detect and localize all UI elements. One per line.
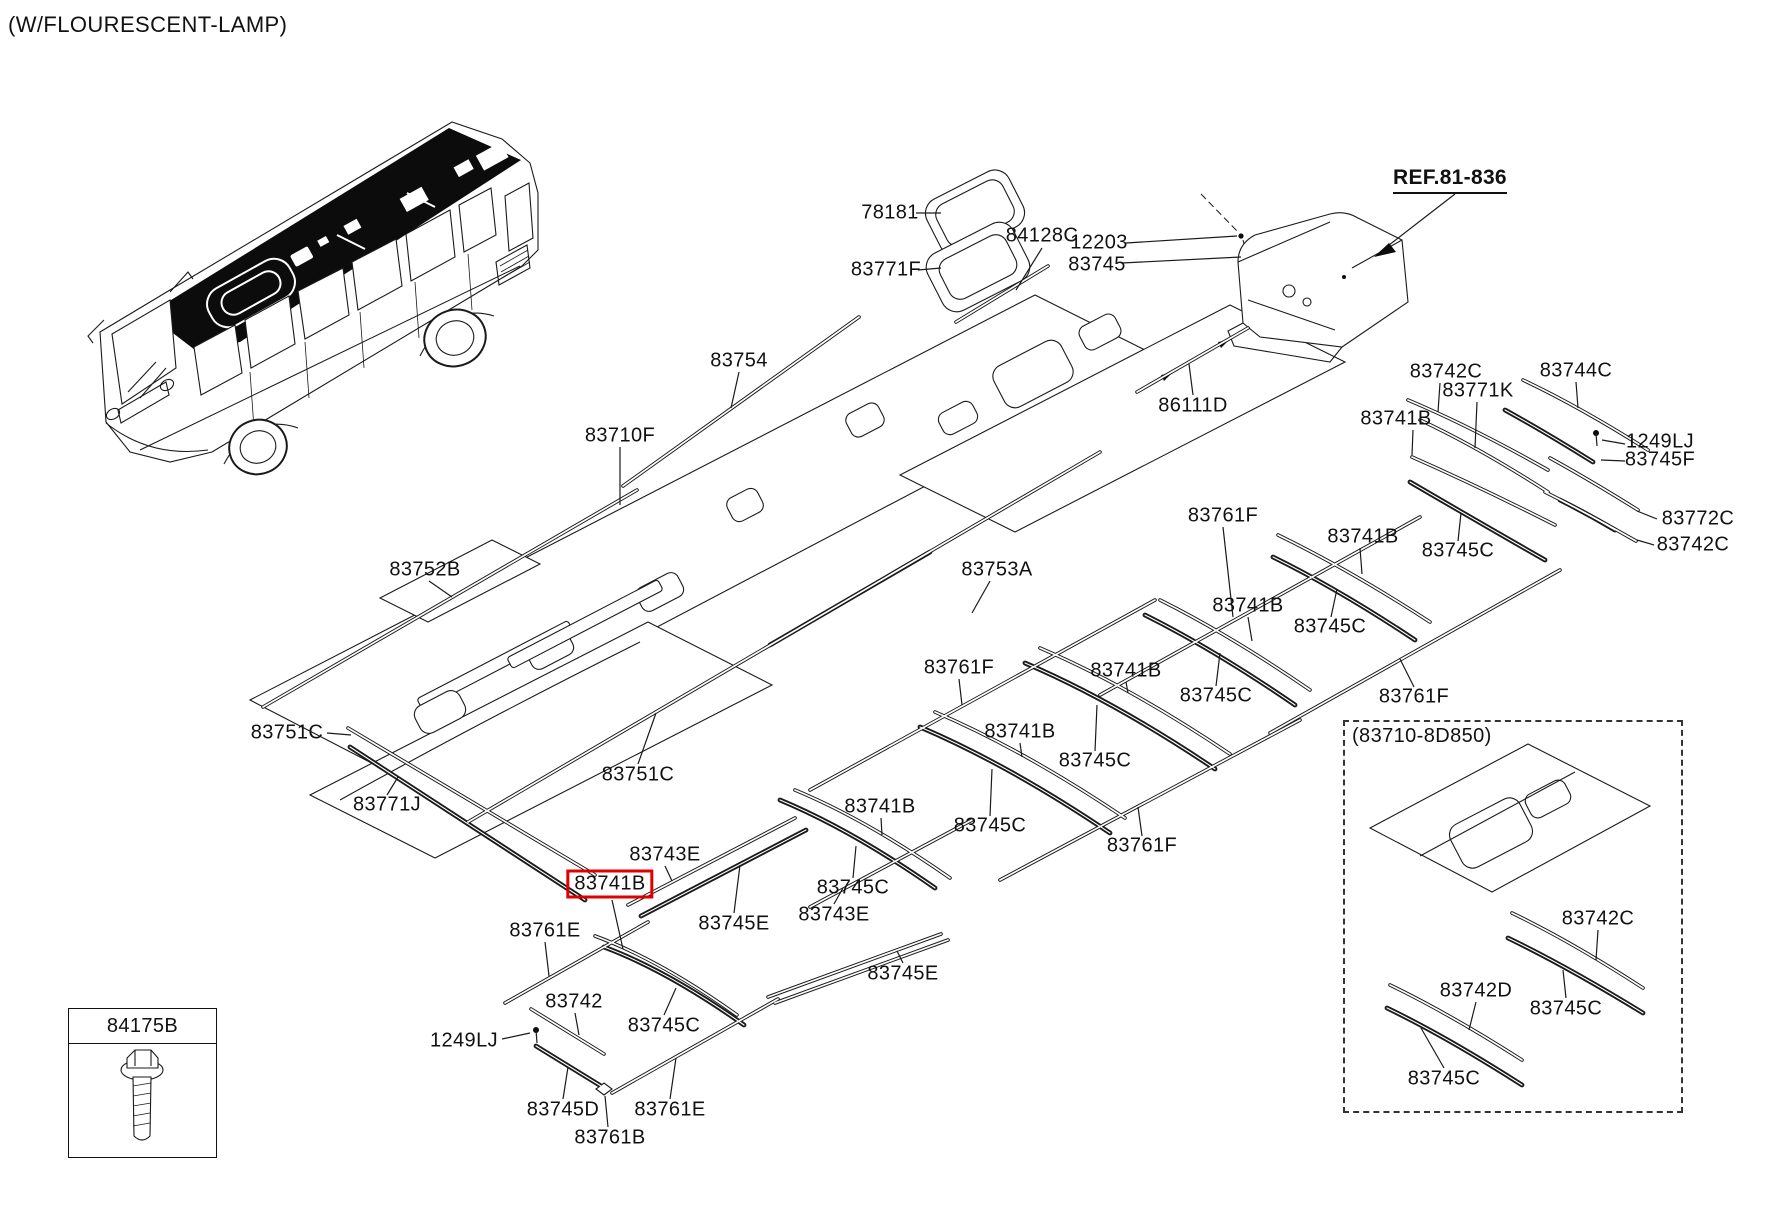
part-label: 83771J [353, 794, 421, 817]
part-label: 83745C [1180, 685, 1252, 708]
part-label: 83761B [574, 1127, 645, 1150]
part-label: 83771K [1442, 380, 1513, 403]
part-label: 83761E [634, 1099, 705, 1122]
part-label: 83761F [1107, 835, 1177, 858]
part-label: 83761E [509, 920, 580, 943]
part-label: 83743E [629, 844, 700, 867]
part-label: 83761F [924, 657, 994, 680]
part-label: 86111D [1158, 395, 1228, 418]
part-label: 83745C [628, 1015, 700, 1038]
part-label: 83710F [585, 425, 655, 448]
part-label: 83745C [1422, 540, 1494, 563]
part-label: 83761F [1188, 505, 1258, 528]
part-label: 83742 [545, 991, 603, 1014]
part-label: 83741B [984, 721, 1055, 744]
part-label: 83772C [1662, 508, 1734, 531]
part-label: 83753A [961, 559, 1032, 582]
part-label: 83741B [1212, 595, 1283, 618]
part-label: 83752B [389, 559, 460, 582]
part-label: 1249LJ [430, 1030, 498, 1053]
part-label: 83745F [1625, 449, 1695, 472]
part-label: 83745C [817, 877, 889, 900]
part-label: 83745E [698, 913, 769, 936]
part-label: 12203 [1070, 232, 1128, 255]
variant-box-title: (83710-8D850) [1352, 725, 1492, 748]
legend-box: 84175B [68, 1008, 217, 1158]
part-label: 83751C [602, 764, 674, 787]
part-label: 83745E [867, 963, 938, 986]
part-label: 83771F [851, 259, 921, 282]
part-label: 83745 [1068, 254, 1126, 277]
part-label: 83741B [1090, 660, 1161, 683]
part-label: 83741B [1360, 408, 1431, 431]
part-label: 84128C [1006, 225, 1078, 248]
highlighted-part-label: 83741B [566, 870, 653, 899]
part-label: 83745C [1294, 616, 1366, 639]
part-label: 78181 [861, 202, 919, 225]
part-label: 83744C [1540, 360, 1612, 383]
part-label: 83743E [798, 904, 869, 927]
part-label: 83751C [251, 722, 323, 745]
bolt-screw-icon [69, 1044, 215, 1156]
part-label: 83761F [1379, 686, 1449, 709]
part-label: 83754 [710, 350, 768, 373]
part-label: 83745C [1059, 750, 1131, 773]
part-label: 83741B [844, 796, 915, 819]
variant-box: (83710-8D850) [1343, 720, 1683, 1113]
part-label: 83745C [954, 815, 1026, 838]
part-label: 83742C [1657, 534, 1729, 557]
part-label: 83745D [527, 1099, 599, 1122]
parts-diagram-page: (W/FLOURESCENT-LAMP) REF.81-836 78181837… [0, 0, 1772, 1211]
legend-part-number: 84175B [69, 1009, 216, 1044]
part-label: 83741B [1327, 526, 1398, 549]
